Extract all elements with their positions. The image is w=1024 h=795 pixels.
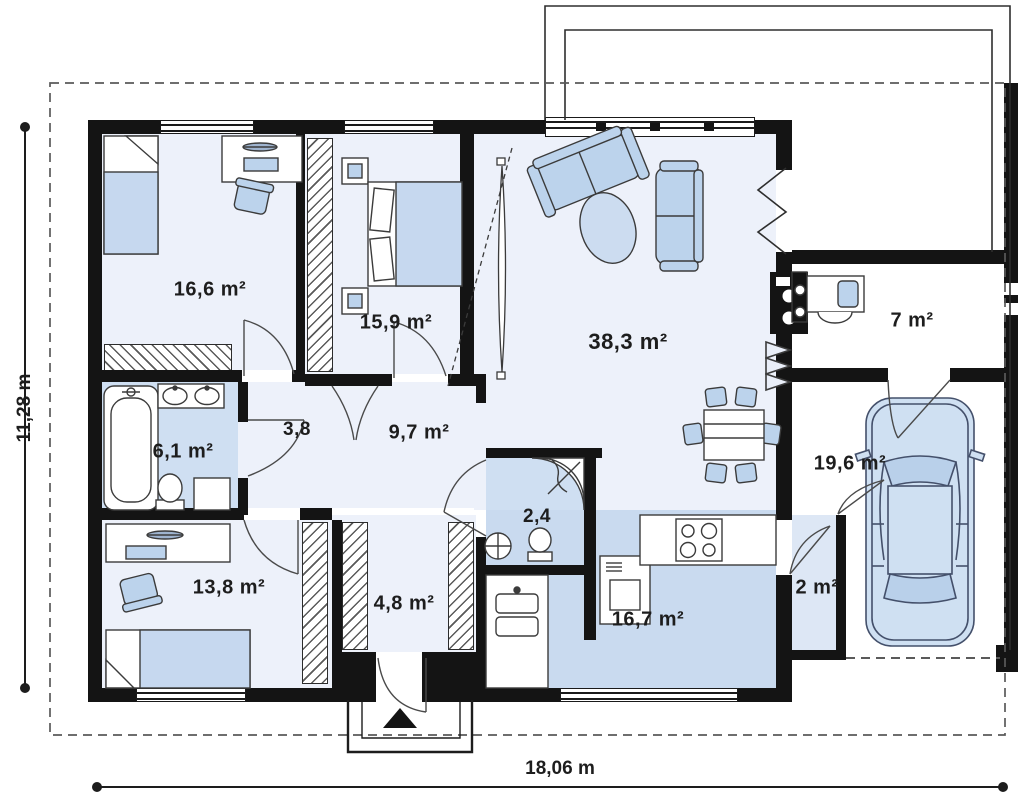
- single-bed-icon: [106, 630, 250, 688]
- room-area-label-kitchen: 16,7 m²: [612, 609, 684, 632]
- double-washbasin-icon: [158, 384, 224, 408]
- plan-graphics-overlay: [0, 0, 1024, 795]
- room-area-label-utility: 7 m²: [890, 310, 933, 333]
- room-area-label-living-room: 38,3 m²: [588, 329, 667, 355]
- room-area-label-bedroom-bottom-left: 13,8 m²: [193, 577, 265, 600]
- desk-chair-icon: [116, 572, 163, 613]
- radiator-icon: [766, 342, 790, 390]
- door-swing-icon: [244, 320, 950, 712]
- floor-plan: 16,6 m² 15,9 m² 38,3 m² 7 m² 3,8 6,1 m² …: [0, 0, 1024, 795]
- room-area-label-wardrobe: 4,8 m²: [374, 593, 435, 616]
- kitchen-hob-icon: [640, 515, 776, 565]
- toilet-icon: [528, 528, 552, 561]
- dimension-label-height: 11,28 m: [14, 374, 36, 443]
- room-area-label-storage: 2 m²: [795, 577, 838, 600]
- dimension-line-width: [93, 783, 1008, 792]
- room-area-label-garage: 19,6 m²: [814, 453, 886, 476]
- dimension-label-width: 18,06 m: [525, 758, 595, 780]
- desk-icon: [222, 136, 302, 182]
- room-area-label-bathroom: 6,1 m²: [153, 441, 214, 464]
- washbasin-icon: [485, 533, 511, 559]
- sofa-icon: [656, 161, 703, 271]
- entrance-arrow-icon: [383, 708, 417, 728]
- room-area-label-bedroom-top-middle: 15,9 m²: [360, 312, 432, 335]
- car-icon: [855, 398, 984, 646]
- desk-icon: [106, 524, 230, 562]
- room-area-label-bedroom-top-left: 16,6 m²: [174, 279, 246, 302]
- dining-table-icon: [683, 387, 782, 483]
- kitchen-sink-counter-icon: [486, 575, 548, 688]
- washing-machine-icon: [194, 478, 230, 510]
- single-bed-icon: [104, 136, 158, 254]
- double-bed-icon: [342, 158, 462, 314]
- corner-window-zigzag: [758, 168, 786, 254]
- toilet-icon: [156, 474, 184, 510]
- room-area-label-hall: 3,8: [283, 419, 311, 441]
- washing-machine-icon: [792, 272, 864, 323]
- desk-chair-icon: [231, 177, 275, 215]
- corner-shower-icon: [532, 458, 584, 510]
- room-area-label-corridor: 9,7 m²: [389, 422, 450, 445]
- bathtub-icon: [104, 386, 158, 510]
- room-area-label-wc: 2,4: [523, 506, 551, 528]
